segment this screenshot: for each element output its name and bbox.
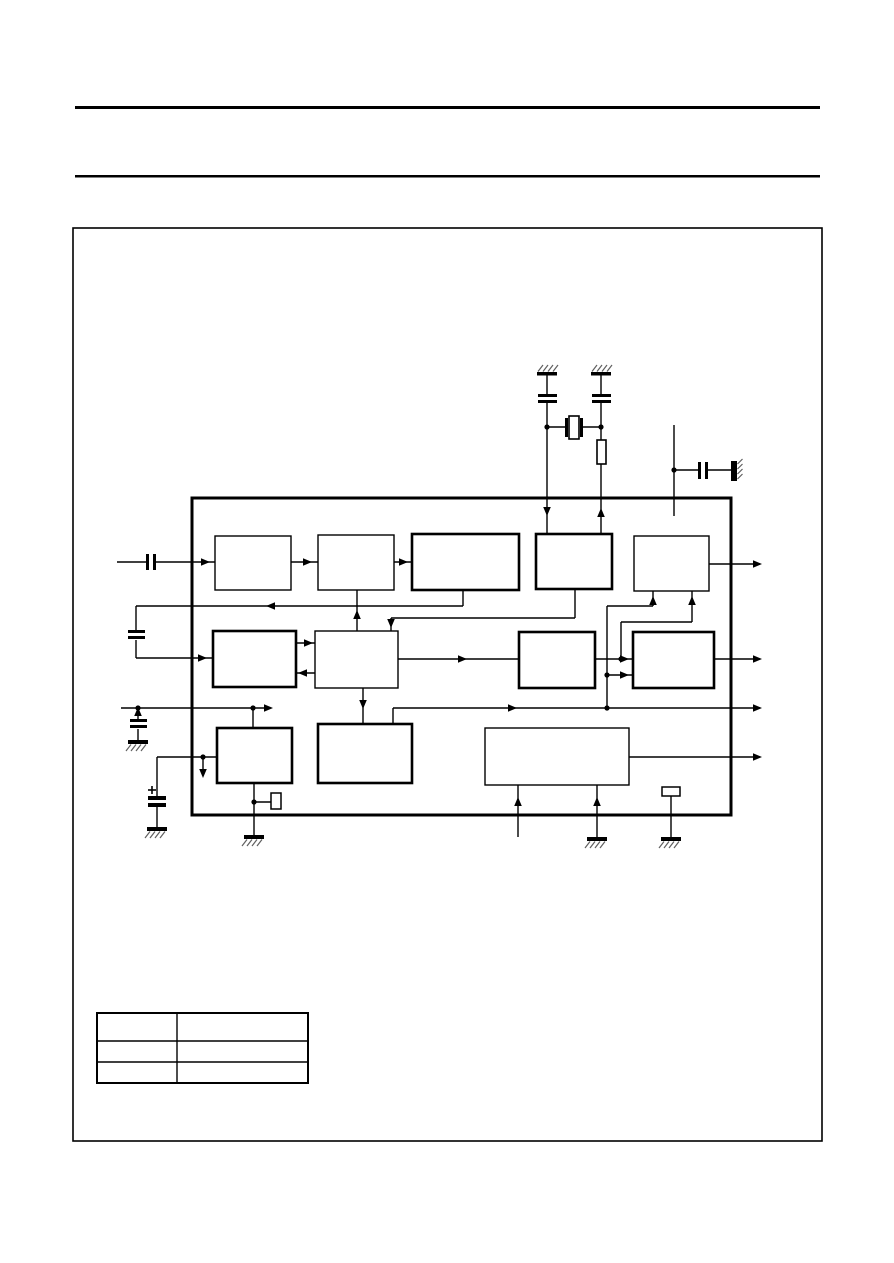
ground-symbol	[128, 740, 148, 744]
signal-arrow	[458, 655, 467, 663]
signal-arrow	[298, 669, 307, 677]
signal-arrow	[753, 560, 762, 568]
ground-wall-symbol	[731, 461, 737, 481]
signal-arrow	[514, 797, 522, 806]
signal-arrow	[399, 558, 408, 566]
block-row2-4	[633, 632, 714, 688]
crystal-load-capacitor-2	[592, 394, 611, 397]
signal-arrow	[387, 619, 395, 628]
block-row2-2	[315, 631, 398, 688]
ground-hatch	[738, 459, 743, 464]
decoupling-capacitor-right	[698, 462, 701, 479]
ground-hatch	[585, 842, 590, 849]
signal-arrow	[199, 769, 207, 778]
ground-symbol	[147, 827, 167, 831]
ground-hatch	[607, 365, 612, 372]
block-row2-3	[519, 632, 595, 688]
header-rule	[75, 175, 820, 178]
electrolytic-capacitor	[148, 803, 166, 807]
junction-dot	[250, 705, 255, 710]
ground-hatch	[145, 832, 150, 839]
ground-symbol	[591, 372, 611, 376]
junction-dot	[598, 424, 603, 429]
decoupling-capacitor-right	[705, 462, 708, 479]
signal-arrow	[543, 507, 551, 516]
ground-symbol	[587, 837, 607, 841]
crystal-plate	[580, 418, 583, 437]
block-row3-2	[318, 724, 412, 783]
ground-hatch	[538, 365, 543, 372]
resistor	[597, 440, 606, 464]
signal-arrow	[264, 704, 273, 712]
signal-arrow	[688, 596, 696, 605]
datasheet-page	[0, 0, 894, 1263]
ground-hatch	[600, 842, 605, 849]
ground-hatch	[597, 365, 602, 372]
ground-hatch	[595, 842, 600, 849]
junction-dot	[251, 799, 256, 804]
ground-hatch	[738, 464, 743, 469]
ground-hatch	[257, 840, 262, 847]
block-row2-1	[213, 631, 296, 687]
ground-hatch	[674, 842, 679, 849]
ground-hatch	[548, 365, 553, 372]
ground-hatch	[136, 745, 141, 752]
ground-hatch	[160, 832, 165, 839]
junction-dot	[604, 705, 609, 710]
feedback-capacitor	[128, 636, 145, 639]
ground-hatch	[141, 745, 146, 752]
signal-arrow	[266, 602, 275, 610]
input-coupling-capacitor	[146, 554, 149, 570]
crystal-load-capacitor-1	[538, 400, 557, 403]
input-coupling-capacitor	[153, 554, 156, 570]
ground-hatch	[252, 840, 257, 847]
signal-arrow	[201, 558, 210, 566]
block-row1-1	[215, 536, 291, 590]
ground-symbol	[537, 372, 557, 376]
crystal-plate	[565, 418, 568, 437]
junction-dot	[604, 672, 609, 677]
ground-hatch	[664, 842, 669, 849]
junction-dot	[618, 656, 623, 661]
junction-dot	[671, 467, 676, 472]
legend-table	[97, 1013, 308, 1083]
feedback-capacitor	[128, 630, 145, 633]
ground-hatch	[126, 745, 131, 752]
block-row3-3	[485, 728, 629, 785]
ground-hatch	[659, 842, 664, 849]
ground-hatch	[543, 365, 548, 372]
signal-arrow	[304, 639, 313, 647]
ground-hatch	[602, 365, 607, 372]
signal-arrow	[303, 558, 312, 566]
crystal-load-capacitor-1	[538, 394, 557, 397]
signal-arrow	[753, 655, 762, 663]
ground-symbol	[661, 837, 681, 841]
bus-capacitor	[130, 725, 147, 728]
internal-resistor-left	[271, 793, 281, 809]
block-row1-2	[318, 535, 394, 590]
ground-hatch	[155, 832, 160, 839]
crystal-load-capacitor-2	[592, 400, 611, 403]
header-rule	[75, 106, 820, 109]
signal-arrow	[597, 508, 605, 517]
ground-symbol	[244, 835, 264, 839]
signal-arrow	[753, 753, 762, 761]
signal-arrow	[198, 654, 207, 662]
ground-hatch	[150, 832, 155, 839]
internal-resistor-right	[662, 787, 680, 796]
ground-hatch	[247, 840, 252, 847]
signal-arrow	[593, 797, 601, 806]
ground-hatch	[669, 842, 674, 849]
signal-arrow	[508, 704, 517, 712]
ground-hatch	[131, 745, 136, 752]
signal-arrow	[620, 671, 629, 679]
block-row1-3	[412, 534, 519, 590]
junction-dot	[200, 754, 205, 759]
ground-hatch	[592, 365, 597, 372]
block-row1-5	[634, 536, 709, 591]
junction-dot	[135, 705, 140, 710]
ground-hatch	[590, 842, 595, 849]
ground-hatch	[553, 365, 558, 372]
signal-arrow	[359, 700, 367, 709]
bus-capacitor	[130, 719, 147, 722]
signal-arrow	[649, 596, 657, 605]
electrolytic-capacitor	[148, 796, 166, 800]
ground-hatch	[738, 469, 743, 474]
block-diagram-figure	[0, 0, 894, 1263]
signal-arrow	[753, 704, 762, 712]
block-row1-4	[536, 534, 612, 589]
signal-arrow	[353, 610, 361, 619]
junction-dot	[544, 424, 549, 429]
crystal	[569, 416, 579, 439]
block-row3-1	[217, 728, 292, 783]
ground-hatch	[242, 840, 247, 847]
ground-hatch	[738, 474, 743, 479]
